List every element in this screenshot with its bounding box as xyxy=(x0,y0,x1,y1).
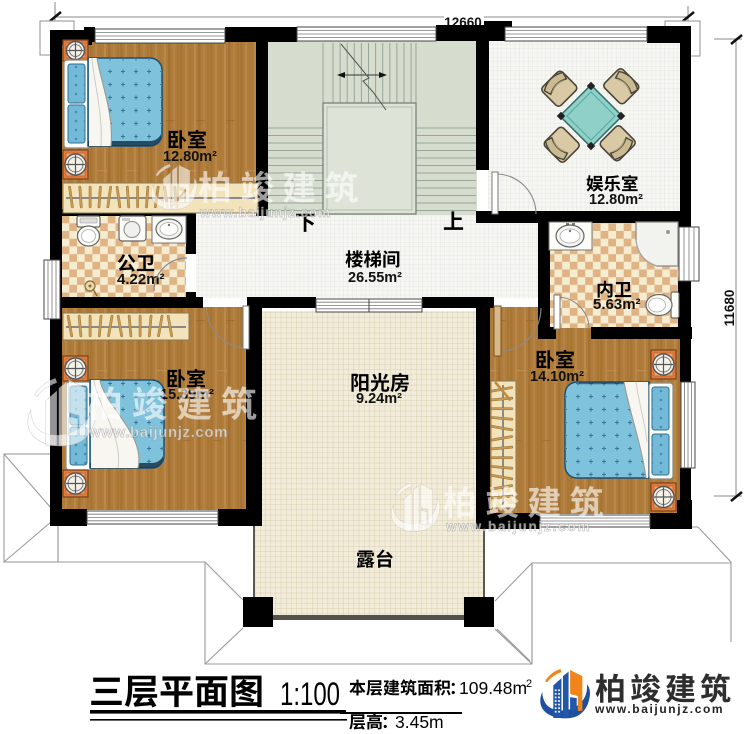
svg-text:14.10m²: 14.10m² xyxy=(530,369,584,385)
svg-text:9.24m²: 9.24m² xyxy=(356,391,402,407)
svg-text:1:100: 1:100 xyxy=(280,676,340,712)
svg-text:5.63m²: 5.63m² xyxy=(593,296,641,313)
svg-text:12.80m²: 12.80m² xyxy=(589,192,643,208)
svg-text:109.48m: 109.48m xyxy=(459,678,527,698)
svg-text:2: 2 xyxy=(526,678,532,690)
svg-text:www.baijunjz.com: www.baijunjz.com xyxy=(594,702,724,716)
svg-text:www.baijunjz.com: www.baijunjz.com xyxy=(199,205,331,220)
svg-text:4.22m²: 4.22m² xyxy=(117,271,165,288)
svg-text:26.55m²: 26.55m² xyxy=(348,270,402,286)
svg-text:www.baijunjz.com: www.baijunjz.com xyxy=(88,424,228,441)
svg-text:12.80m²: 12.80m² xyxy=(163,149,217,165)
svg-text:www.baijunjz.com: www.baijunjz.com xyxy=(445,519,591,534)
svg-text:3.45m: 3.45m xyxy=(395,712,444,732)
svg-text:11680: 11680 xyxy=(722,290,737,327)
